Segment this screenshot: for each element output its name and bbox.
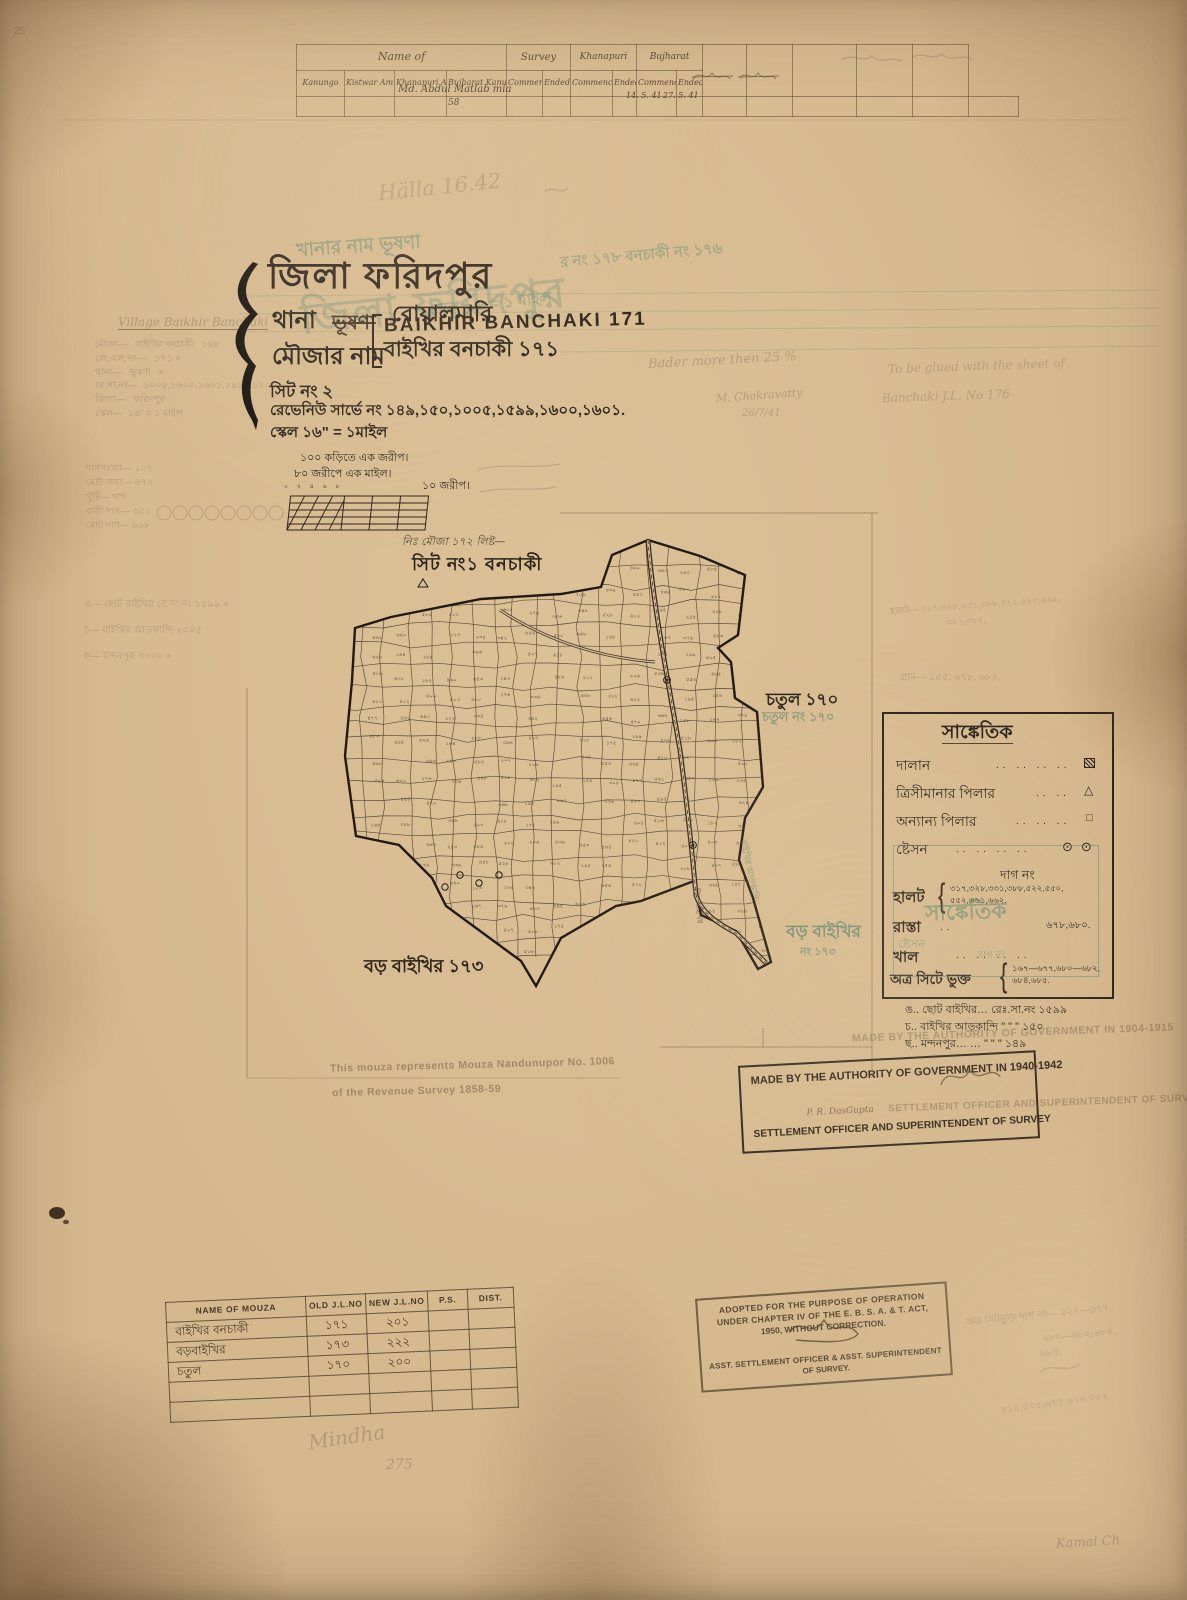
scanned-mouza-map-sheet: Name of Survey Khanapuri Bujharat Kanung… [0, 0, 1187, 1600]
pencil-squiggles [478, 54, 1080, 1372]
ink-blot [49, 1207, 65, 1219]
ink-brace-mark [235, 262, 258, 430]
ink-blot-small [63, 1220, 69, 1224]
green-guide-lines [240, 290, 1160, 352]
signature-squiggles [692, 73, 1001, 1342]
neat-lines [60, 120, 1130, 1078]
overlay-marks [0, 0, 1187, 1600]
pencil-circles-row [157, 506, 283, 520]
